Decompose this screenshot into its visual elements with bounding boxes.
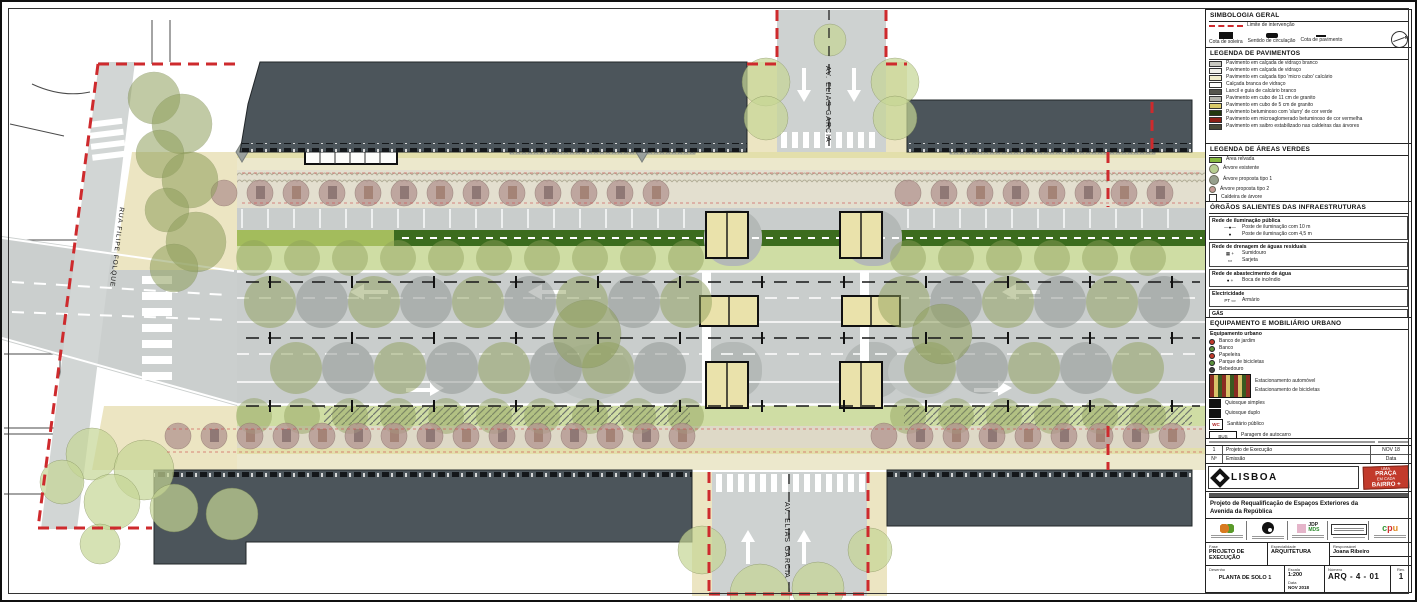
drawing-number-cell: Número ARQ - 4 - 01 — [1325, 566, 1391, 592]
tree-icon — [1209, 186, 1216, 193]
cota-box-icon — [1219, 32, 1233, 39]
pavement-label: Calçada branca de vidraço — [1226, 82, 1285, 88]
pavement-swatch — [1209, 103, 1222, 109]
partner-logo-4 — [1330, 521, 1369, 540]
rev-num: 1 — [1206, 446, 1223, 454]
infrastructure-item: ●Poste de iluminação com 4,5 m — [1222, 232, 1405, 238]
green-legend-item: Caldeira de árvore — [1209, 194, 1408, 202]
orgaos-title: ÓRGÃOS SALIENTES DAS INFRAESTRUTURAS — [1209, 203, 1408, 214]
jdp-icon — [1297, 524, 1306, 533]
equipment-label: Banco — [1219, 346, 1233, 352]
pavement-label: Pavimento em cubo de 11 cm de granito — [1226, 96, 1315, 102]
equipment-item: Banco — [1209, 346, 1408, 352]
pavement-legend-item: Pavimento em cubo de 11 cm de granito — [1209, 96, 1408, 102]
equipamento-subtitle: Equipamento urbano — [1210, 331, 1408, 337]
logo-ring-icon — [1262, 522, 1274, 534]
infrastructure-label: Poste de iluminação com 4,5 m — [1242, 232, 1312, 238]
pavement-swatch — [1209, 75, 1222, 81]
infrastructure-label: Poste de iluminação com 10 m — [1242, 225, 1310, 231]
partner-logo-5: cpu — [1371, 521, 1409, 540]
equipment-item: Quiosque duplo — [1209, 409, 1408, 418]
municipality-row: LISBOA UMA PRAÇA EM CADA BAIRRO + — [1206, 464, 1411, 492]
rev-head-n: Nº — [1206, 455, 1223, 463]
pavement-swatch — [1209, 61, 1222, 67]
cota-pav-label: Cota de pavimento — [1300, 38, 1342, 44]
infrastructure-group-title: Rede de drenagem de águas residuais — [1212, 244, 1405, 250]
simbologia-title: SIMBOLOGIA GERAL — [1209, 11, 1408, 22]
equipment-dot-icon — [1209, 367, 1215, 373]
pavement-swatch — [1209, 96, 1222, 102]
verdes-title: LEGENDA DE ÁREAS VERDES — [1209, 145, 1408, 156]
pavement-legend-item: Pavimento em cubo de 5 cm de granito — [1209, 103, 1408, 109]
infrastructure-group: Rede de abastecimento de água● +Boca de … — [1209, 269, 1408, 287]
green-label: Árvore existente — [1223, 166, 1259, 172]
pavement-swatch — [1209, 82, 1222, 88]
bus-stop-icon: BUS — [1209, 431, 1237, 439]
praca-bairro-stamp: UMA PRAÇA EM CADA BAIRRO + — [1363, 465, 1410, 490]
pavement-swatch — [1209, 89, 1222, 95]
responsavel-cell: Responsável Joana Ribeiro — [1330, 543, 1411, 557]
infrastructure-item: —●—Poste de iluminação com 10 m — [1222, 225, 1405, 231]
boundary-line-sample — [1209, 25, 1243, 27]
infrastructure-group-title: Electricidade — [1212, 291, 1405, 297]
lisboa-logo-icon — [1210, 468, 1230, 488]
drawing-sheet: AV. ELIAS GARCIA AV. ELIAS GARCIA RUA FI… — [0, 0, 1417, 602]
infrastructure-label: Armário — [1242, 298, 1260, 304]
kiosk-icon — [1209, 399, 1221, 408]
infrastructure-symbol: ▭ — [1222, 258, 1238, 264]
equipment-item: Bebedouro — [1209, 367, 1408, 373]
equipment-label: Quiosque simples — [1225, 401, 1265, 407]
infrastructure-group: GÁS▭Armário — [1209, 309, 1408, 319]
legend-panel: SIMBOLOGIA GERAL Limite de intervenção C… — [1205, 9, 1412, 593]
infrastructure-group: Rede de iluminação pública—●—Poste de il… — [1209, 216, 1408, 240]
pavement-legend-item: Pavimento em calçada tipo 'micro cubo' c… — [1209, 75, 1408, 81]
pavement-label: Lancil e guia de calcário branco — [1226, 89, 1296, 95]
cota-soleira-label: Cota de soleira — [1209, 40, 1243, 46]
simbologia-box: SIMBOLOGIA GERAL Limite de intervenção C… — [1206, 10, 1411, 48]
note-illegible — [1206, 439, 1411, 446]
equipment-dot-icon — [1209, 360, 1215, 366]
project-title-line2: Avenida da República — [1210, 509, 1407, 517]
south-kerb-strip — [237, 448, 1206, 454]
green-label: Árvore proposta tipo 2 — [1220, 187, 1269, 193]
infrastructure-label: Sarjeta — [1242, 258, 1258, 264]
equipment-label: Papeleira — [1219, 353, 1240, 359]
infrastructure-group-title: Rede de abastecimento de água — [1212, 271, 1405, 277]
project-title-line1: Projeto de Requalificação de Espaços Ext… — [1210, 501, 1407, 509]
green-legend-item: Árvore proposta tipo 2 — [1209, 186, 1408, 193]
pattern-paving — [237, 170, 1206, 183]
pavimentos-box: LEGENDA DE PAVIMENTOS Pavimento em calça… — [1206, 48, 1411, 144]
pavement-legend-item: Pavimento em calçada de vidraço branco — [1209, 61, 1408, 67]
infrastructure-item: ● +Boca de incêndio — [1222, 278, 1405, 284]
esplanade-swatch — [1209, 374, 1251, 398]
rev-head-desc: Emissão — [1223, 455, 1371, 463]
escala-cell: Escala 1:200 Data NOV 2018 — [1285, 566, 1325, 592]
fase-cell: Fase PROJETO DE EXECUÇÃO — [1206, 543, 1268, 565]
pavement-label: Pavimento em calçada de vidraço branco — [1226, 61, 1318, 67]
pavement-label: Pavimento em cubo de 5 cm de granito — [1226, 103, 1313, 109]
equipment-label: Quiosque duplo — [1225, 411, 1260, 417]
infrastructure-label: Sumidouro — [1242, 251, 1266, 257]
pavimentos-title: LEGENDA DE PAVIMENTOS — [1209, 49, 1408, 60]
sentido-label: Sentido de circulação — [1248, 39, 1296, 45]
orgaos-box: ÓRGÃOS SALIENTES DAS INFRAESTRUTURAS Red… — [1206, 202, 1411, 318]
equipment-dot-icon — [1209, 353, 1215, 359]
green-swatch — [1209, 157, 1222, 163]
logo-box-icon — [1331, 524, 1367, 535]
street-label-south: AV. ELIAS GARCIA — [783, 502, 790, 579]
pavement-legend-item: Lancil e guia de calcário branco — [1209, 89, 1408, 95]
infrastructure-group: ElectricidadePT ▭Armário — [1209, 289, 1408, 307]
green-legend-item: Área relvada — [1209, 157, 1408, 163]
wc-icon: WC — [1209, 419, 1223, 430]
green-label: Caldeira de árvore — [1221, 195, 1262, 201]
equipment-item: Papeleira — [1209, 353, 1408, 359]
equipment-item: WCSanitário público — [1209, 419, 1408, 430]
infrastructure-symbol: ▦ + — [1222, 251, 1238, 257]
equipment-dot-icon — [1209, 346, 1215, 352]
rev-head-date: Data — [1371, 455, 1411, 463]
equipment-label: Estacionamento de bicicletas — [1255, 388, 1320, 394]
titleblock-fields: Fase PROJETO DE EXECUÇÃO Especialidade A… — [1206, 543, 1411, 592]
infrastructure-item: ▭Sarjeta — [1222, 258, 1405, 264]
logo-blob-icon — [1220, 524, 1234, 533]
tree-pit-icon — [1209, 194, 1217, 202]
equipment-label: Banco de jardim — [1219, 339, 1255, 345]
revision-cell: Rev. 1 — [1391, 566, 1411, 592]
green-legend-item: Árvore existente — [1209, 164, 1408, 174]
equipment-label: Parque de bicicletas — [1219, 360, 1264, 366]
equipment-item: Banco de jardim — [1209, 339, 1408, 345]
equipment-item: Parque de bicicletas — [1209, 360, 1408, 366]
tree-icon — [1209, 175, 1219, 185]
drawing-number: ARQ - 4 - 01 — [1328, 572, 1379, 581]
infrastructure-group-title: GÁS — [1212, 311, 1405, 317]
cpu-wordmark: cpu — [1382, 524, 1398, 533]
partner-logo-1 — [1208, 521, 1247, 540]
pavement-legend-item: Pavimento betuminoso com 'slurry' de cor… — [1209, 110, 1408, 116]
infrastructure-symbol: ● + — [1222, 278, 1238, 283]
partner-logos: JDPMDS cpu — [1206, 519, 1411, 543]
lisboa-logo: LISBOA — [1208, 466, 1359, 489]
caption-bar — [1209, 493, 1408, 498]
green-legend-item: Árvore proposta tipo 1 — [1209, 175, 1408, 185]
rev-desc: Projeto de Execução — [1223, 446, 1371, 454]
pavement-legend-item: Calçada branca de vidraço — [1209, 82, 1408, 88]
project-title: Projeto de Requalificação de Espaços Ext… — [1206, 499, 1411, 519]
lisboa-wordmark: LISBOA — [1231, 472, 1291, 483]
equipment-item: Quiosque simples — [1209, 399, 1408, 408]
equipment-label: Estacionamento automóvel — [1255, 379, 1320, 385]
infrastructure-symbol: —●— — [1222, 225, 1238, 230]
pavement-legend-item: Pavimento em microaglomerado betuminoso … — [1209, 117, 1408, 123]
pavement-label: Pavimento em microaglomerado betuminoso … — [1226, 117, 1362, 123]
pavement-swatch — [1209, 117, 1222, 123]
pavement-legend-item: Pavimento em saibro estabilizado nas cal… — [1209, 124, 1408, 130]
desenho-cell: Desenho PLANTA DE SOLO 1 — [1206, 566, 1285, 592]
pavement-label: Pavimento betuminoso com 'slurry' de cor… — [1226, 110, 1332, 116]
infrastructure-symbol: PT ▭ — [1222, 298, 1238, 304]
green-label: Área relvada — [1226, 157, 1254, 163]
equipment-label: Bebedouro — [1219, 367, 1243, 373]
kiosk-icon — [1209, 409, 1221, 418]
equipamento-title: EQUIPAMENTO E MOBILIÁRIO URBANO — [1209, 319, 1408, 330]
equipment-label: Sanitário público — [1227, 422, 1264, 428]
infrastructure-item: ▦ +Sumidouro — [1222, 251, 1405, 257]
green-label: Árvore proposta tipo 1 — [1223, 177, 1272, 183]
tree-icon — [1209, 164, 1219, 174]
pavement-swatch — [1209, 124, 1222, 130]
esplanade-labels: Estacionamento automóvelEstacionamento d… — [1255, 379, 1320, 394]
equipment-label: Paragem de autocarro — [1241, 433, 1291, 439]
revision-number: 1 — [1399, 572, 1403, 581]
partner-logo-3: JDPMDS — [1290, 521, 1329, 540]
pavement-label: Pavimento em calçada de vidraço — [1226, 68, 1301, 74]
limite-label: Limite de intervenção — [1247, 23, 1295, 29]
verdes-box: LEGENDA DE ÁREAS VERDES Área relvadaÁrvo… — [1206, 144, 1411, 202]
equipment-item: BUSParagem de autocarro — [1209, 431, 1408, 439]
equipment-dot-icon — [1209, 339, 1215, 345]
esplanade-swatch-item: Estacionamento automóvelEstacionamento d… — [1209, 374, 1408, 398]
pavement-swatch — [1209, 110, 1222, 116]
pavement-label: Pavimento em calçada tipo 'micro cubo' c… — [1226, 75, 1332, 81]
infrastructure-label: Boca de incêndio — [1242, 278, 1280, 284]
street-label-north: AV. ELIAS GARCIA — [824, 66, 831, 143]
pavement-swatch — [1209, 68, 1222, 74]
infrastructure-item: PT ▭Armário — [1222, 298, 1405, 304]
pavement-legend-item: Pavimento em calçada de vidraço — [1209, 68, 1408, 74]
rev-date: NOV 18 — [1371, 446, 1411, 454]
north-arrow-icon: N — [1391, 31, 1408, 48]
especialidade-cell: Especialidade ARQUITETURA — [1268, 543, 1330, 565]
partner-logo-2 — [1249, 521, 1288, 540]
infrastructure-symbol: ● — [1222, 232, 1238, 237]
equipamento-box: EQUIPAMENTO E MOBILIÁRIO URBANO Equipame… — [1206, 318, 1411, 439]
infrastructure-group: Rede de drenagem de águas residuais▦ +Su… — [1209, 242, 1408, 267]
pavement-label: Pavimento em saibro estabilizado nas cal… — [1226, 124, 1359, 130]
revision-table: 1 Projeto de Execução NOV 18 Nº Emissão … — [1206, 446, 1411, 464]
